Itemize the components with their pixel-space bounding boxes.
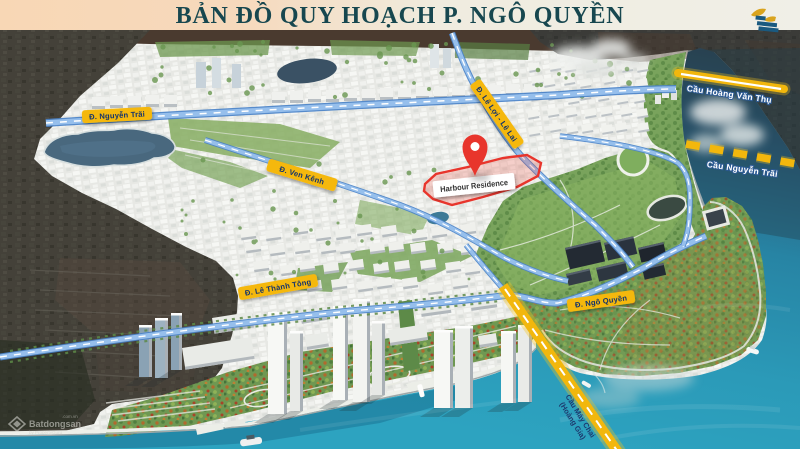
svg-text:Batdongsan: Batdongsan — [29, 419, 81, 429]
svg-text:by PropertyGuru: by PropertyGuru — [29, 430, 63, 435]
svg-text:BẢN ĐỒ QUY HOẠCH P. NGÔ QUYỀN: BẢN ĐỒ QUY HOẠCH P. NGÔ QUYỀN — [176, 2, 625, 29]
svg-text:.com.vn: .com.vn — [62, 414, 78, 419]
